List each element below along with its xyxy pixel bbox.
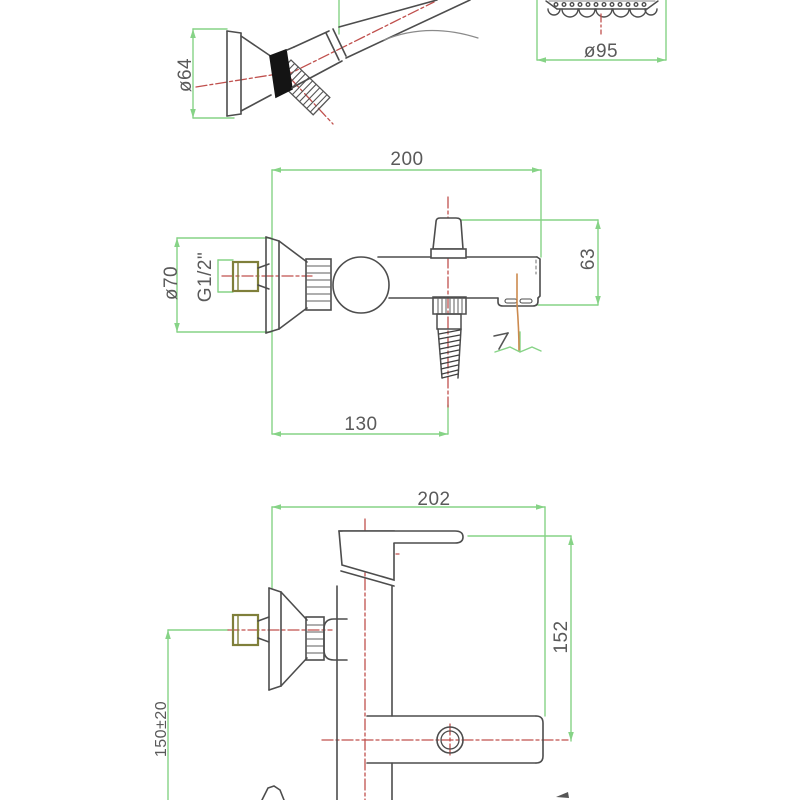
spout-height-dimension-label: 63 bbox=[580, 239, 598, 279]
handshower-outline bbox=[227, 0, 478, 116]
bath-mixer-centerlines bbox=[222, 197, 448, 407]
shower-mixer-body bbox=[262, 531, 463, 800]
bath-mixer-view bbox=[174, 167, 601, 437]
bath-mixer-body bbox=[266, 237, 389, 333]
bath-mixer-spout bbox=[378, 257, 540, 306]
water-stream bbox=[494, 274, 519, 350]
flange-diameter-label: ø70 bbox=[163, 258, 181, 308]
shower-mixer-height-label: 152 bbox=[553, 612, 571, 662]
bath-mixer-dim-arrows bbox=[174, 167, 601, 437]
shower-mixer-width-label: 202 bbox=[404, 491, 464, 509]
handshower-centerlines bbox=[196, 2, 434, 124]
bath-mixer-dims bbox=[177, 170, 598, 434]
drawing-linework bbox=[0, 0, 800, 800]
showerhead-outline bbox=[546, 1, 658, 17]
handshower-view bbox=[190, 0, 478, 124]
stream-angle-mark bbox=[494, 333, 508, 349]
showerhead-diameter-label: ø95 bbox=[571, 43, 631, 61]
diverter-knob bbox=[431, 218, 466, 258]
bath-mixer-hose bbox=[433, 297, 466, 378]
spout-depth-dimension-label: 130 bbox=[331, 416, 391, 434]
dim-64-lines bbox=[193, 0, 339, 118]
shower-mixer-view bbox=[165, 504, 574, 800]
install-height-dimension-label: 150±20 bbox=[153, 689, 171, 769]
thread-size-label: G1/2" bbox=[197, 247, 215, 307]
handshower-diameter-label: ø64 bbox=[177, 50, 195, 100]
technical-drawing-canvas: ø64 ø95 200 ø70 G1/2" 63 130 202 152 150… bbox=[0, 0, 800, 800]
cutoff-mark bbox=[556, 792, 569, 798]
shower-mixer-centerlines bbox=[228, 519, 568, 800]
mixer-width-dimension-label: 200 bbox=[377, 151, 437, 169]
